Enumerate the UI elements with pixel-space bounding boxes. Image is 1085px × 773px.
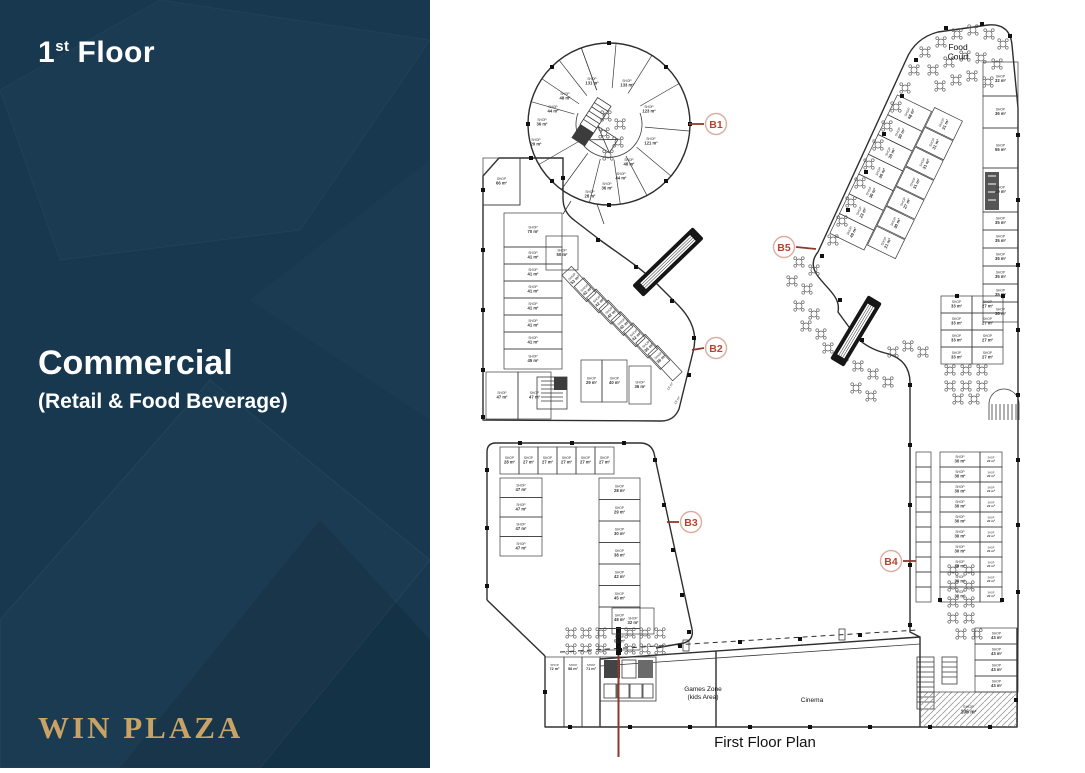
dining-table-icon: [809, 309, 819, 319]
svg-text:SHOP30 m²: SHOP30 m²: [955, 500, 967, 509]
svg-text:SHOP28 m²: SHOP28 m²: [504, 456, 516, 465]
svg-text:SHOP36 m²: SHOP36 m²: [635, 381, 647, 390]
dining-table-icon: [851, 383, 861, 393]
dining-table-icon: [891, 102, 901, 112]
structural-column: [908, 563, 912, 567]
section-subtitle: (Retail & Food Beverage): [38, 390, 288, 414]
svg-text:B4: B4: [884, 556, 898, 568]
structural-column: [692, 336, 696, 340]
shop-group-row_47: SHOP47 m²SHOP47 m²: [486, 372, 551, 419]
svg-text:SHOP22 m²: SHOP22 m²: [987, 486, 995, 492]
marker-b3: B3: [667, 512, 702, 533]
walls: [483, 25, 1019, 727]
structural-column: [518, 441, 522, 445]
svg-text:SHOP41 m²: SHOP41 m²: [528, 251, 540, 260]
svg-text:SHOP22 m²: SHOP22 m²: [987, 546, 995, 552]
svg-text:SHOP27 m²: SHOP27 m²: [982, 351, 994, 360]
svg-text:SHOP30 m²: SHOP30 m²: [884, 145, 897, 159]
area-labels: FoodCourtGames Zone(kids Area)Cinema: [684, 42, 969, 704]
svg-text:SHOP121 m²: SHOP121 m²: [644, 137, 658, 146]
svg-text:SHOP43 m²: SHOP43 m²: [991, 632, 1003, 641]
structural-column: [914, 58, 918, 62]
structural-column: [526, 122, 530, 126]
svg-text:SHOP30 m²: SHOP30 m²: [894, 126, 907, 140]
svg-text:SHOP58 m²: SHOP58 m²: [568, 663, 579, 671]
svg-text:SHOP30 m²: SHOP30 m²: [955, 455, 967, 464]
structural-column: [607, 203, 611, 207]
dining-table-icon: [961, 365, 971, 375]
structural-column: [543, 690, 547, 694]
svg-text:SHOP27 m²: SHOP27 m²: [899, 195, 912, 209]
dining-table-icon: [945, 365, 955, 375]
svg-text:SHOP30 m²: SHOP30 m²: [865, 185, 878, 199]
section-title: Commercial: [38, 344, 233, 383]
dining-table-icon: [603, 150, 613, 160]
area-label-games_zone: Games Zone(kids Area): [684, 686, 722, 701]
structural-column: [908, 383, 912, 387]
structural-column: [928, 725, 932, 729]
dining-table-icon: [977, 381, 987, 391]
structural-column: [485, 584, 489, 588]
structural-column: [1016, 590, 1020, 594]
svg-text:SHOP48 m²: SHOP48 m²: [614, 613, 626, 622]
structural-column: [882, 132, 886, 136]
svg-text:SHOP36 m²: SHOP36 m²: [602, 182, 614, 191]
floor-ordinal: st: [55, 38, 69, 55]
dining-table-icon: [945, 381, 955, 391]
svg-text:SHOP123 m²: SHOP123 m²: [642, 105, 656, 114]
svg-text:SHOP22 m²: SHOP22 m²: [987, 501, 995, 507]
svg-text:SHOP35 m²: SHOP35 m²: [995, 271, 1007, 280]
panel-texture: [0, 0, 430, 768]
structural-column: [662, 503, 666, 507]
svg-text:SHOP38 m²: SHOP38 m²: [995, 308, 1007, 317]
dining-table-icon: [846, 197, 856, 207]
dining-table-icon: [936, 37, 946, 47]
dining-table-icon: [935, 81, 945, 91]
svg-text:SHOP27 m²: SHOP27 m²: [561, 456, 573, 465]
svg-text:B2: B2: [709, 343, 723, 355]
dining-table-icon: [581, 644, 591, 654]
svg-text:SHOP41 m²: SHOP41 m²: [528, 302, 540, 311]
svg-text:SHOP27 m²: SHOP27 m²: [599, 456, 611, 465]
structural-column: [1016, 263, 1020, 267]
stair-core: [537, 377, 567, 409]
area-label-food_court: FoodCourt: [948, 42, 969, 62]
svg-text:SHOP38 m²: SHOP38 m²: [614, 549, 626, 558]
structural-column: [808, 725, 812, 729]
structural-column: [664, 65, 668, 69]
shop-group-block_33: SHOP33 m²SHOP33 m²SHOP33 m²SHOP33 m²: [941, 296, 972, 364]
svg-text:SHOP50 m²: SHOP50 m²: [557, 249, 569, 258]
shop-group-bottom_left: SHOP72 m²SHOP58 m²SHOP71 m²: [545, 657, 600, 727]
structural-column: [670, 299, 674, 303]
shop-group-b4_right: SHOP22 m²SHOP22 m²SHOP22 m²SHOP22 m²SHOP…: [980, 452, 1002, 602]
structural-column: [653, 458, 657, 462]
svg-text:SHOP41 m²: SHOP41 m²: [528, 336, 540, 345]
svg-text:SHOP20 m²: SHOP20 m²: [531, 138, 543, 147]
svg-text:SHOP70 m²: SHOP70 m²: [528, 226, 540, 235]
structural-column: [485, 526, 489, 530]
dining-table-icon: [853, 361, 863, 371]
svg-text:SHOP27 m²: SHOP27 m²: [542, 456, 554, 465]
structural-column: [868, 725, 872, 729]
dining-table-icon: [596, 628, 606, 638]
dining-table-icon: [984, 29, 994, 39]
svg-text:SHOP71 m²: SHOP71 m²: [586, 663, 597, 671]
area-label-cinema: Cinema: [801, 697, 824, 704]
structural-column: [798, 637, 802, 641]
svg-text:SHOP44 m²: SHOP44 m²: [616, 172, 628, 181]
marker-b5: B5: [774, 237, 817, 258]
svg-text:SHOP22 m²: SHOP22 m²: [987, 516, 995, 522]
dining-table-icon: [882, 121, 892, 131]
shop-group-b4_left: SHOP30 m²SHOP30 m²SHOP30 m²SHOP30 m²SHOP…: [940, 452, 980, 602]
svg-text:SHOP41 m²: SHOP41 m²: [528, 319, 540, 328]
svg-text:SHOP28 m²: SHOP28 m²: [585, 190, 597, 199]
svg-text:SHOP22 m²: SHOP22 m²: [987, 531, 995, 537]
shop-group-b3_top: SHOP28 m²SHOP27 m²SHOP27 m²SHOP27 m²SHOP…: [500, 447, 614, 474]
svg-text:SHOP133 m²: SHOP133 m²: [620, 79, 634, 88]
svg-text:SHOP27 m²: SHOP27 m²: [982, 300, 994, 309]
dining-table-icon: [883, 377, 893, 387]
structural-columns: [481, 22, 1020, 729]
dining-table-icon: [581, 628, 591, 638]
structural-column: [820, 254, 824, 258]
svg-text:SHOP48 m²: SHOP48 m²: [903, 106, 916, 120]
structural-column: [908, 503, 912, 507]
dining-table-icon: [964, 613, 974, 623]
svg-text:SHOP40 m²: SHOP40 m²: [609, 377, 621, 386]
svg-text:SHOP47 m²: SHOP47 m²: [497, 391, 509, 400]
svg-text:SHOP35 m²: SHOP35 m²: [995, 217, 1007, 226]
svg-text:SHOP33 m²: SHOP33 m²: [951, 334, 963, 343]
structural-column: [628, 725, 632, 729]
dining-table-icon: [640, 628, 650, 638]
svg-text:SHOP72 m²: SHOP72 m²: [550, 663, 561, 671]
svg-text:SHOP66 m²: SHOP66 m²: [496, 177, 508, 186]
structural-column: [607, 41, 611, 45]
marker-b2: B2: [692, 338, 727, 359]
dining-table-icon: [976, 53, 986, 63]
dining-table-icon: [566, 628, 576, 638]
shop-group-b2_bottom: SHOP29 m²SHOP40 m²SHOP36 m²: [581, 360, 651, 404]
dining-table-icon: [948, 613, 958, 623]
block-markers: B1B2B3B4B5: [667, 114, 916, 572]
dining-table-icon: [794, 301, 804, 311]
structural-column: [664, 179, 668, 183]
dining-table-icon: [967, 71, 977, 81]
svg-text:19 m²: 19 m²: [666, 381, 675, 391]
svg-text:B5: B5: [777, 242, 791, 254]
svg-text:B1: B1: [709, 119, 723, 131]
structural-column: [1016, 393, 1020, 397]
svg-text:SHOP41 m²: SHOP41 m²: [528, 285, 540, 294]
structural-column: [944, 26, 948, 30]
brand-logo: WIN PLAZA: [38, 710, 243, 746]
svg-text:SHOP45 m²: SHOP45 m²: [614, 592, 626, 601]
dining-table-icon: [998, 39, 1008, 49]
svg-text:SHOP27 m²: SHOP27 m²: [580, 456, 592, 465]
svg-text:SHOP22 m²: SHOP22 m²: [987, 576, 995, 582]
svg-text:SHOP33 m²: SHOP33 m²: [951, 317, 963, 326]
dining-table-icon: [625, 644, 635, 654]
svg-text:SHOP35 m²: SHOP35 m²: [995, 235, 1007, 244]
svg-text:SHOP30 m²: SHOP30 m²: [889, 215, 902, 229]
svg-text:SHOP33 m²: SHOP33 m²: [951, 351, 963, 360]
title-panel: 1stFloor Commercial (Retail & Food Bever…: [0, 0, 430, 768]
svg-text:SHOP31 m²: SHOP31 m²: [928, 136, 941, 150]
dining-table-icon: [992, 59, 1002, 69]
svg-text:SHOP42 m²: SHOP42 m²: [614, 570, 626, 579]
structural-column: [687, 630, 691, 634]
svg-text:SHOP30 m²: SHOP30 m²: [874, 165, 887, 179]
dining-table-icon: [794, 257, 804, 267]
svg-text:SHOP44 m²: SHOP44 m²: [548, 105, 560, 114]
structural-column: [908, 443, 912, 447]
dining-table-icon: [977, 365, 987, 375]
shop-group-b2_diag: SHOP53 m²SHOP42 m²SHOP42 m²SHOP42 m²SHOP…: [562, 266, 682, 380]
structural-column: [864, 170, 868, 174]
floor-plan: SHOP131 m²SHOP133 m²SHOP123 m²SHOP121 m²…: [430, 0, 1085, 768]
svg-text:SHOP47 m²: SHOP47 m²: [516, 503, 528, 512]
structural-column: [481, 415, 485, 419]
structural-column: [680, 593, 684, 597]
structural-column: [980, 22, 984, 26]
svg-text:SHOP27 m²: SHOP27 m²: [982, 334, 994, 343]
dining-table-icon: [802, 284, 812, 294]
structural-column: [596, 238, 600, 242]
dining-table-icon: [615, 119, 625, 129]
svg-text:SHOP43 m²: SHOP43 m²: [991, 648, 1003, 657]
svg-text:SHOP48 m²: SHOP48 m²: [560, 92, 572, 101]
dining-table-icon: [928, 65, 938, 75]
structural-column: [900, 94, 904, 98]
svg-text:SHOP31 m²: SHOP31 m²: [918, 156, 931, 170]
structural-column: [634, 265, 638, 269]
dining-table-icon: [983, 77, 993, 87]
dining-table-icon: [972, 629, 982, 639]
svg-text:SHOP22 m²: SHOP22 m²: [987, 471, 995, 477]
svg-text:SHOP48 m²: SHOP48 m²: [624, 158, 636, 167]
svg-text:SHOP52 m²: SHOP52 m²: [614, 635, 626, 644]
structural-column: [481, 188, 485, 192]
svg-text:SHOP36 m²: SHOP36 m²: [995, 108, 1007, 117]
kids-area-core: [600, 657, 656, 701]
svg-text:SHOP21 m²: SHOP21 m²: [880, 235, 893, 249]
structural-column: [1001, 294, 1005, 298]
structural-column: [858, 633, 862, 637]
structural-column: [955, 294, 959, 298]
svg-text:SHOP32 m²: SHOP32 m²: [628, 617, 640, 626]
structural-column: [838, 298, 842, 302]
svg-text:SHOP43 m²: SHOP43 m²: [991, 680, 1003, 689]
svg-text:SHOP30 m²: SHOP30 m²: [614, 527, 626, 536]
svg-text:SHOP47 m²: SHOP47 m²: [516, 522, 528, 531]
dining-table-icon: [655, 628, 665, 638]
dining-table-icon: [909, 65, 919, 75]
dining-table-icon: [801, 321, 811, 331]
structural-column: [481, 248, 485, 252]
svg-text:SHOP30 m²: SHOP30 m²: [955, 470, 967, 479]
dining-table-icon: [625, 628, 635, 638]
structural-column: [1000, 598, 1004, 602]
structural-column: [687, 373, 691, 377]
svg-text:SHOP22 m²: SHOP22 m²: [987, 456, 995, 462]
structural-column: [1016, 328, 1020, 332]
structural-column: [485, 468, 489, 472]
svg-text:SHOP31 m²: SHOP31 m²: [938, 116, 951, 130]
svg-text:SHOP29 m²: SHOP29 m²: [614, 506, 626, 515]
dining-table-icon: [868, 369, 878, 379]
structural-column: [550, 65, 554, 69]
floor-plan-area: SHOP131 m²SHOP133 m²SHOP123 m²SHOP121 m²…: [430, 0, 1085, 768]
svg-text:SHOP49 m²: SHOP49 m²: [995, 186, 1007, 195]
plan-caption: First Floor Plan: [714, 734, 816, 751]
shop-group-b3_left: SHOP47 m²SHOP47 m²SHOP47 m²SHOP47 m²: [500, 478, 542, 556]
kiosk-cells: [916, 452, 931, 602]
dining-table-icon: [816, 329, 826, 339]
dining-table-icon: [900, 83, 910, 93]
structural-column: [938, 598, 942, 602]
dining-table-icon: [920, 47, 930, 57]
structural-column: [550, 179, 554, 183]
dining-table-icon: [837, 216, 847, 226]
structural-column: [678, 644, 682, 648]
structural-column: [529, 156, 533, 160]
floor-number: 1: [38, 36, 55, 69]
dining-table-icon: [787, 276, 797, 286]
structural-column: [481, 308, 485, 312]
svg-text:SHOP55 m²: SHOP55 m²: [995, 144, 1007, 153]
structural-column: [618, 648, 622, 652]
svg-text:SHOP35 m²: SHOP35 m²: [995, 253, 1007, 262]
structural-column: [988, 725, 992, 729]
svg-text:SHOP29 m²: SHOP29 m²: [586, 377, 598, 386]
svg-text:SHOP23 m²: SHOP23 m²: [855, 205, 868, 219]
shop-group-block_27: SHOP27 m²SHOP27 m²SHOP27 m²SHOP27 m²: [972, 296, 1003, 364]
svg-text:SHOP28 m²: SHOP28 m²: [614, 484, 626, 493]
structural-column: [738, 640, 742, 644]
structural-column: [908, 623, 912, 627]
svg-text:SHOP30 m²: SHOP30 m²: [955, 575, 967, 584]
shop-group-col_43: SHOP43 m²SHOP43 m²SHOP43 m²SHOP43 m²: [975, 628, 1018, 692]
structural-column: [671, 548, 675, 552]
svg-text:B3: B3: [684, 517, 698, 529]
escalator-icon: [632, 227, 704, 297]
marker-b1: B1: [689, 114, 727, 135]
svg-text:SHOP32 m²: SHOP32 m²: [995, 75, 1007, 84]
dining-table-icon: [953, 394, 963, 404]
svg-text:SHOP30 m²: SHOP30 m²: [955, 545, 967, 554]
svg-text:SHOP30 m²: SHOP30 m²: [955, 515, 967, 524]
dining-table-icon: [566, 644, 576, 654]
svg-text:SHOP45 m²: SHOP45 m²: [528, 355, 540, 364]
structural-column: [748, 725, 752, 729]
svg-text:SHOP43 m²: SHOP43 m²: [991, 664, 1003, 673]
marker-leader-line: [796, 247, 816, 249]
floor-word: Floor: [78, 36, 156, 69]
svg-text:SHOP22 m²: SHOP22 m²: [987, 591, 995, 597]
structural-column: [481, 368, 485, 372]
svg-text:SHOP31 m²: SHOP31 m²: [909, 176, 922, 190]
shop-group-left_col: SHOP70 m²SHOP41 m²SHOP41 m²SHOP41 m²SHOP…: [504, 213, 562, 369]
floor-title: 1stFloor: [38, 36, 155, 70]
dining-table-icon: [951, 75, 961, 85]
structural-column: [1008, 34, 1012, 38]
structural-column: [1016, 523, 1020, 527]
shop-group-shop_106: SHOP106 m²: [920, 692, 1017, 727]
svg-text:SHOP47 m²: SHOP47 m²: [516, 483, 528, 492]
structural-column: [1016, 458, 1020, 462]
dining-table-icon: [961, 381, 971, 391]
structural-column: [622, 441, 626, 445]
svg-text:SHOP22 m²: SHOP22 m²: [987, 561, 995, 567]
dining-table-icon: [969, 394, 979, 404]
dining-table-icon: [956, 629, 966, 639]
structural-column: [561, 176, 565, 180]
dining-table-icon: [823, 343, 833, 353]
svg-text:SHOP49 m²: SHOP49 m²: [845, 224, 858, 238]
svg-text:SHOP30 m²: SHOP30 m²: [955, 530, 967, 539]
svg-text:SHOP47 m²: SHOP47 m²: [516, 542, 528, 551]
shop-group-shop_66: SHOP66 m²: [483, 158, 520, 205]
structural-column: [1016, 133, 1020, 137]
dining-table-icon: [903, 341, 913, 351]
structural-column: [1014, 698, 1018, 702]
dining-table-icon: [640, 644, 650, 654]
structural-column: [570, 441, 574, 445]
dining-table-icon: [918, 347, 928, 357]
structural-column: [1016, 198, 1020, 202]
svg-text:SHOP33 m²: SHOP33 m²: [951, 300, 963, 309]
svg-text:SHOP41 m²: SHOP41 m²: [528, 268, 540, 277]
svg-text:SHOP30 m²: SHOP30 m²: [955, 485, 967, 494]
structural-column: [846, 208, 850, 212]
svg-text:SHOP36 m²: SHOP36 m²: [537, 118, 549, 127]
dining-table-icon: [866, 391, 876, 401]
dining-table-icon: [596, 644, 606, 654]
structural-column: [568, 725, 572, 729]
svg-text:SHOP27 m²: SHOP27 m²: [982, 317, 994, 326]
structural-column: [688, 725, 692, 729]
shop-group-corridor_19: 19 m²19 m²: [666, 381, 682, 405]
svg-text:SHOP131 m²: SHOP131 m²: [585, 77, 599, 86]
svg-text:SHOP47 m²: SHOP47 m²: [529, 391, 541, 400]
svg-text:SHOP27 m²: SHOP27 m²: [523, 456, 535, 465]
